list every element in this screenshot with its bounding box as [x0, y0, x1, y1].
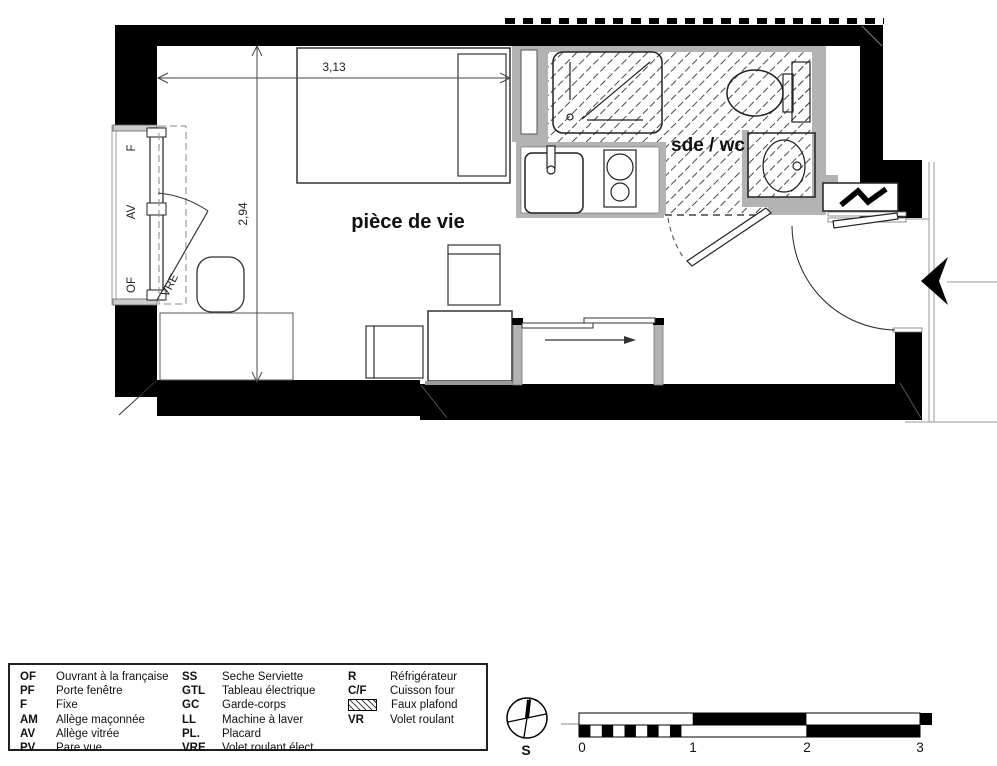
legend-label: Faux plafond: [391, 699, 458, 711]
graphic-scale: 0 1 2 3: [561, 713, 932, 755]
scale-tick-2: 2: [803, 740, 811, 755]
legend-label: Seche Serviette: [222, 671, 303, 683]
legend-row: PFPorte fenêtre: [20, 684, 169, 698]
legend-abbr: F: [20, 699, 56, 711]
legend-row: LLMachine à laver: [182, 713, 317, 727]
sliding-window: [512, 318, 664, 385]
bathroom-door-swing-arc: [668, 218, 683, 257]
legend-abbr: PF: [20, 685, 56, 697]
legend-row: VRVolet roulant: [348, 713, 458, 727]
legend-row: RRéfrigérateur: [348, 670, 458, 684]
bath-right-lining-notch: [812, 175, 838, 183]
scale-decile: [647, 725, 658, 737]
scale-decile: [602, 725, 613, 737]
sliding-panel-1: [522, 323, 593, 328]
scale-tick-3: 3: [916, 740, 924, 755]
legend-label: Tableau électrique: [222, 685, 315, 697]
legend-abbr: AV: [20, 728, 56, 740]
room-label-bath: sde / wc: [671, 135, 745, 156]
kitchen-fixtures: [525, 146, 636, 213]
legend-row: OFOuvrant à la française: [20, 670, 169, 684]
legend-box: OFOuvrant à la française PFPorte fenêtre…: [8, 663, 488, 751]
scale-top-end-cap: [920, 713, 932, 725]
scale-decile: [670, 725, 681, 737]
bath-bottom-band: [768, 205, 826, 215]
floor-outline: [160, 313, 293, 380]
wall-bottom-left: [157, 380, 420, 416]
legend-abbr: AM: [20, 714, 56, 726]
legend-label: Allège maçonnée: [56, 714, 145, 726]
legend-row: PVPare vue: [20, 741, 169, 755]
legend-row: PL.Placard: [182, 727, 317, 741]
sliding-post-left: [513, 322, 522, 385]
legend-label: Placard: [222, 728, 261, 740]
scale-bottom-black-2-3: [806, 725, 920, 737]
legend-abbr: SS: [182, 671, 222, 683]
legend-row: GTLTableau électrique: [182, 684, 317, 698]
sliding-post-right: [654, 322, 663, 385]
armchair: [197, 257, 244, 312]
window-label-of: OF: [126, 277, 138, 293]
legend-abbr: LL: [182, 714, 222, 726]
legend-abbr: VRE: [182, 742, 222, 754]
window-sash-block-mid: [147, 203, 166, 215]
scale-decile: [579, 725, 590, 737]
duct-slot: [521, 50, 537, 134]
compass: S: [507, 698, 547, 758]
kitchen-tap-stem: [547, 146, 555, 168]
desk-shadow: [425, 381, 513, 385]
bathroom-door-leaf: [687, 208, 771, 266]
wall-right-upper: [860, 25, 883, 160]
legend-abbr: C/F: [348, 685, 390, 697]
legend-row: GCGarde-corps: [182, 698, 317, 712]
sliding-direction-arrowhead: [624, 336, 636, 344]
legend-label: Volet roulant: [390, 714, 454, 726]
wall-left-upper: [115, 25, 157, 128]
legend-label: Réfrigérateur: [390, 671, 457, 683]
legend-abbr: GTL: [182, 685, 222, 697]
legend-abbr: VR: [348, 714, 390, 726]
wall-left-lower: [115, 300, 157, 397]
legend-row: FFixe: [20, 698, 169, 712]
wall-top: [115, 25, 883, 46]
floor-plan-drawing: 3,13 2,94 F AV OF VRE pièce de vie sde /…: [0, 0, 997, 660]
window-label-f: F: [126, 144, 138, 151]
entrance-door: [792, 212, 922, 332]
compass-needle: [527, 700, 529, 718]
legend-abbr: R: [348, 671, 390, 683]
scale-decile: [625, 725, 636, 737]
floor-plan-page: { "plan": { "rooms": { "living": "pièce …: [0, 0, 997, 766]
legend-label: Cuisson four: [390, 685, 455, 697]
legend-label: Garde-corps: [222, 699, 286, 711]
legend-column-2: SSSeche Serviette GTLTableau électrique …: [182, 670, 317, 755]
legend-label: Pare vue: [56, 742, 102, 754]
legend-row: AMAllège maçonnée: [20, 713, 169, 727]
compass-south-label: S: [521, 742, 530, 758]
room-label-living: pièce de vie: [351, 211, 464, 233]
legend-column-1: OFOuvrant à la française PFPorte fenêtre…: [20, 670, 169, 755]
legend-row: VREVolet roulant élect.: [182, 741, 317, 755]
electrical-panel: [823, 183, 898, 211]
legend-abbr: GC: [182, 699, 222, 711]
legend-abbr: OF: [20, 671, 56, 683]
bath-top-lining: [548, 46, 826, 52]
cooktop: [604, 150, 636, 207]
sliding-panel-2: [584, 318, 655, 323]
scale-tick-0: 0: [578, 740, 586, 755]
legend-abbr: PV: [20, 742, 56, 754]
legend-row: AVAllège vitrée: [20, 727, 169, 741]
scale-tick-1: 1: [689, 740, 697, 755]
kitchen-tap-head: [547, 166, 555, 174]
faux-plafond-hatch-swatch: [348, 699, 377, 711]
scale-top-black-1-2: [693, 713, 807, 725]
legend-label: Allège vitrée: [56, 728, 119, 740]
window-sash-block-top: [147, 128, 166, 137]
legend-label: Ouvrant à la française: [56, 671, 169, 683]
bathroom-door: [665, 208, 771, 266]
legend-row: C/FCuisson four: [348, 684, 458, 698]
dim-height-text: 2,94: [236, 202, 250, 226]
legend-label: Machine à laver: [222, 714, 303, 726]
legend-label: Fixe: [56, 699, 78, 711]
entrance-door-swing-arc: [792, 226, 895, 330]
desk: [428, 311, 512, 381]
legend-row: Faux plafond: [348, 698, 458, 712]
legend-label: Volet roulant élect.: [222, 742, 317, 754]
wall-bottom-right: [420, 384, 906, 420]
window-label-av: AV: [126, 204, 138, 219]
dim-width-text: 3,13: [322, 60, 346, 74]
wall-right-lower: [895, 330, 922, 420]
towel-radiator: [792, 62, 810, 122]
legend-column-3: RRéfrigérateur C/FCuisson four Faux plaf…: [348, 670, 458, 727]
legend-abbr: PL.: [182, 728, 222, 740]
sliding-post-cap-left: [512, 318, 523, 325]
legend-label: Porte fenêtre: [56, 685, 122, 697]
entrance-jamb-tick: [893, 328, 922, 332]
bed-pillow: [458, 54, 506, 176]
scale-bar: S 0 1 2 3: [505, 693, 997, 763]
legend-row: SSSeche Serviette: [182, 670, 317, 684]
